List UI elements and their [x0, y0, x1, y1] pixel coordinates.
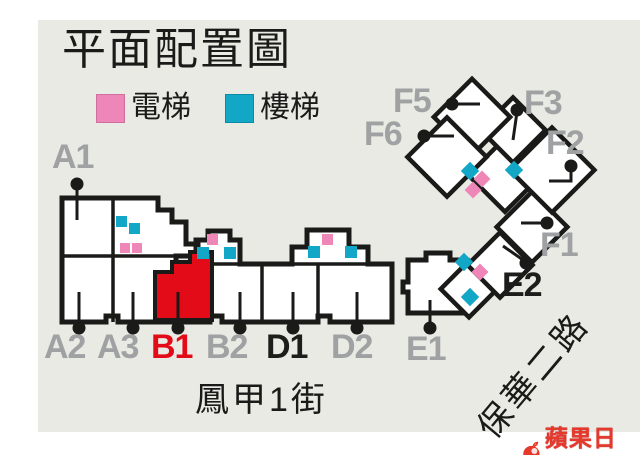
unit-label-f5: F5: [393, 84, 431, 118]
unit-label-a3: A3: [97, 330, 138, 364]
credit-logo: 蘋果日報: [521, 419, 640, 455]
unit-label-e1: E1: [406, 332, 446, 366]
unit-label-f6: F6: [364, 117, 402, 151]
unit-label-a1: A1: [52, 140, 93, 174]
unit-label-b2: B2: [206, 330, 247, 364]
stairs-marker: [308, 246, 320, 258]
elevator-marker: [132, 243, 142, 253]
stairs-marker: [345, 246, 357, 258]
stairs-marker: [197, 247, 209, 259]
unit-label-e2: E2: [502, 268, 542, 302]
stairs-marker: [116, 216, 127, 227]
floor-plan-infographic: 平面配置圖 電梯 樓梯 A1 A2 A3 B1 B2 D1 D2 E1 E2 F…: [0, 0, 640, 455]
apple-logo-icon: [521, 441, 543, 455]
unit-label-f3: F3: [524, 86, 562, 120]
elevator-legend-label: 電梯: [131, 93, 191, 123]
elevator-legend-swatch: [96, 94, 125, 123]
elevator-marker: [322, 234, 333, 245]
unit-label-d1: D1: [266, 330, 307, 364]
elevator-marker: [120, 243, 130, 253]
stairs-legend-label: 樓梯: [260, 93, 320, 123]
unit-label-b1: B1: [151, 330, 192, 364]
stairs-marker: [224, 247, 236, 259]
legend: 電梯 樓梯: [96, 93, 320, 123]
unit-label-a2: A2: [44, 330, 85, 364]
street-label-fengjia: 鳳甲1街: [195, 372, 328, 421]
unit-label-d2: D2: [331, 330, 372, 364]
stairs-marker: [129, 223, 140, 234]
unit-label-f2: F2: [546, 126, 584, 160]
stairs-legend-swatch: [225, 94, 254, 123]
credit-text: 蘋果日報: [545, 419, 640, 455]
page-title: 平面配置圖: [62, 28, 292, 72]
unit-label-f1: F1: [540, 228, 578, 262]
elevator-marker: [207, 234, 218, 245]
